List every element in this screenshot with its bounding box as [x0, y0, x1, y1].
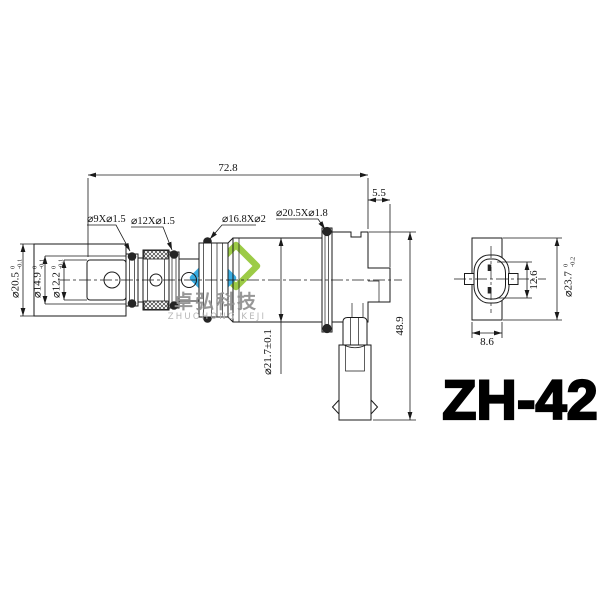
- dim-total-length: 72.8: [218, 162, 238, 174]
- housing-tab-left: [333, 400, 340, 414]
- svg-text:-0.1: -0.1: [39, 259, 46, 269]
- technical-drawing: 72.8 5.5 48.9 ⌀21.7±0.1 ⌀20.5 0 -0.1 ⌀14…: [0, 0, 600, 600]
- end-view: 12.6 ⌀23.7 0 -0.2 8.6: [454, 238, 577, 348]
- watermark-cn-text: 卓弘科技: [174, 290, 258, 313]
- connector-neck: [343, 318, 367, 346]
- oring-1-top: [128, 252, 137, 261]
- svg-text:0: 0: [51, 266, 58, 269]
- oring-4-top: [322, 227, 331, 236]
- watermark-en-text: ZHUOHONG KEJI: [168, 312, 266, 322]
- dim-total-height: 48.9: [394, 316, 406, 336]
- drawing-canvas: 72.8 5.5 48.9 ⌀21.7±0.1 ⌀20.5 0 -0.1 ⌀14…: [0, 0, 600, 600]
- svg-text:-0.2: -0.2: [570, 257, 577, 267]
- dim-connector-width: 8.6: [480, 336, 494, 348]
- label-oring-2: ⌀12X⌀1.5: [131, 216, 175, 227]
- knurl-hatch-bottom: [144, 301, 168, 310]
- svg-text:⌀23.7: ⌀23.7: [563, 271, 575, 297]
- oring-4-bottom: [322, 324, 331, 333]
- dim-end-od: ⌀23.7 0 -0.2: [563, 257, 577, 297]
- oring-1-bottom: [128, 299, 137, 308]
- connector-housing: [339, 345, 371, 420]
- svg-text:-0.1: -0.1: [58, 259, 65, 269]
- svg-text:⌀20.5: ⌀20.5: [10, 272, 22, 298]
- knurl-hatch-top: [144, 251, 168, 260]
- label-oring-4: ⌀20.5X⌀1.8: [276, 208, 328, 219]
- svg-text:-0.1: -0.1: [17, 259, 24, 269]
- part-number: ZH-42: [442, 368, 598, 431]
- dim-body-od: ⌀20.5 0 -0.1: [10, 259, 24, 298]
- housing-tab-right: [371, 400, 378, 414]
- dim-pin-span: 12.6: [528, 270, 540, 290]
- yoke: [332, 232, 390, 322]
- svg-text:0: 0: [10, 266, 17, 269]
- label-oring-3: ⌀16.8X⌀2: [222, 214, 266, 225]
- label-oring-1: ⌀9X⌀1.5: [87, 214, 126, 225]
- side-view: [34, 227, 402, 420]
- dim-step-length: 5.5: [372, 187, 386, 199]
- svg-text:⌀14.9: ⌀14.9: [32, 272, 44, 298]
- svg-text:⌀12.2: ⌀12.2: [51, 272, 63, 298]
- svg-text:0: 0: [32, 266, 39, 269]
- dim-coil-diameter: ⌀21.7±0.1: [262, 329, 274, 375]
- svg-text:0: 0: [563, 264, 570, 267]
- oring-2-top: [170, 250, 179, 259]
